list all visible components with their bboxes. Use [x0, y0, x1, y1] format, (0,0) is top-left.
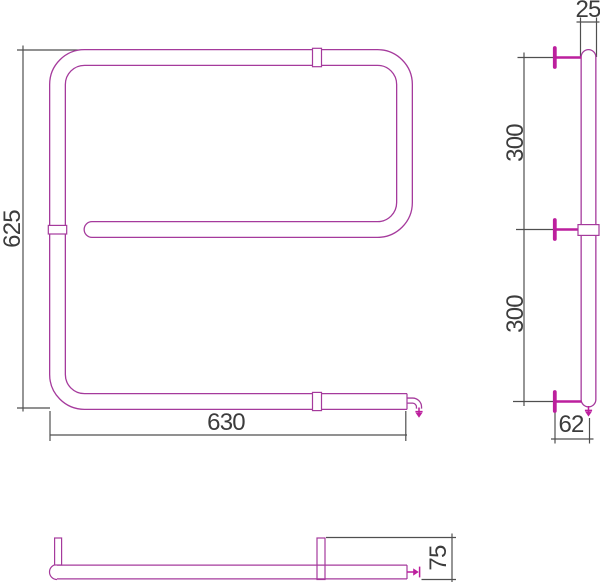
bottom-coupling-band	[313, 392, 322, 410]
front-view	[48, 48, 422, 418]
dim-side-spans: 300 300	[502, 53, 556, 407]
side-view	[555, 48, 599, 417]
dimensions: 625 630 25 300 300	[0, 0, 600, 582]
dim-bottom-depth-label: 75	[425, 545, 452, 571]
bracket-stub-left	[55, 538, 62, 565]
dim-side-bottom-offset-label: 62	[558, 411, 584, 438]
wall-bracket-top	[555, 48, 582, 67]
wall-bracket-bottom	[555, 392, 582, 411]
dim-side-upper-span-label: 300	[502, 124, 529, 162]
drawing-canvas: 625 630 25 300 300	[0, 0, 600, 582]
top-coupling-band	[313, 48, 322, 66]
bottom-view	[50, 538, 420, 580]
dim-front-height: 625	[0, 46, 86, 412]
dim-side-pipe-width-label: 25	[575, 0, 600, 23]
bottom-connection-arrow-icon	[407, 567, 420, 578]
left-coupling-band	[48, 225, 66, 234]
dim-front-width-label: 630	[207, 409, 245, 436]
dimension-drawing: 625 630 25 300 300	[0, 0, 600, 582]
side-flow-down-arrow-icon	[585, 406, 592, 417]
dim-front-width: 630	[50, 409, 407, 441]
middle-bar-section	[578, 225, 599, 236]
front-pipe-bore	[58, 58, 408, 402]
dim-front-height-label: 625	[0, 210, 26, 248]
pipe-left-cap	[50, 565, 57, 580]
dim-side-pipe-width: 25	[575, 0, 600, 57]
dim-side-lower-span-label: 300	[502, 295, 529, 333]
